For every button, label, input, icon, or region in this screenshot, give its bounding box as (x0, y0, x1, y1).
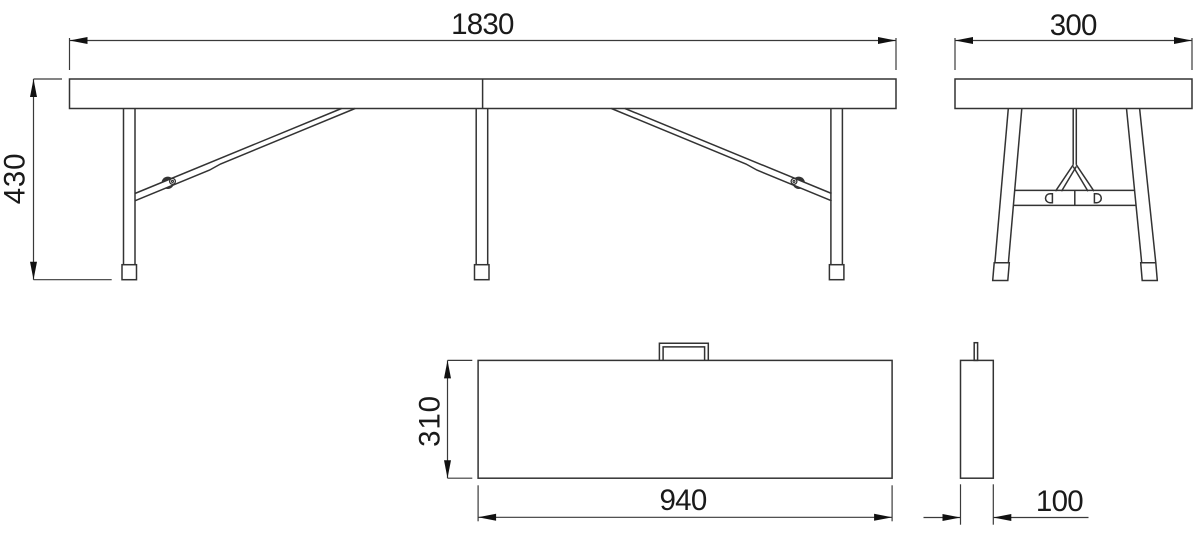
svg-text:1830: 1830 (451, 8, 514, 41)
svg-text:300: 300 (1050, 9, 1097, 42)
svg-text:100: 100 (1036, 485, 1083, 518)
svg-text:940: 940 (660, 484, 707, 517)
svg-text:310: 310 (413, 395, 446, 447)
svg-text:430: 430 (0, 153, 31, 205)
